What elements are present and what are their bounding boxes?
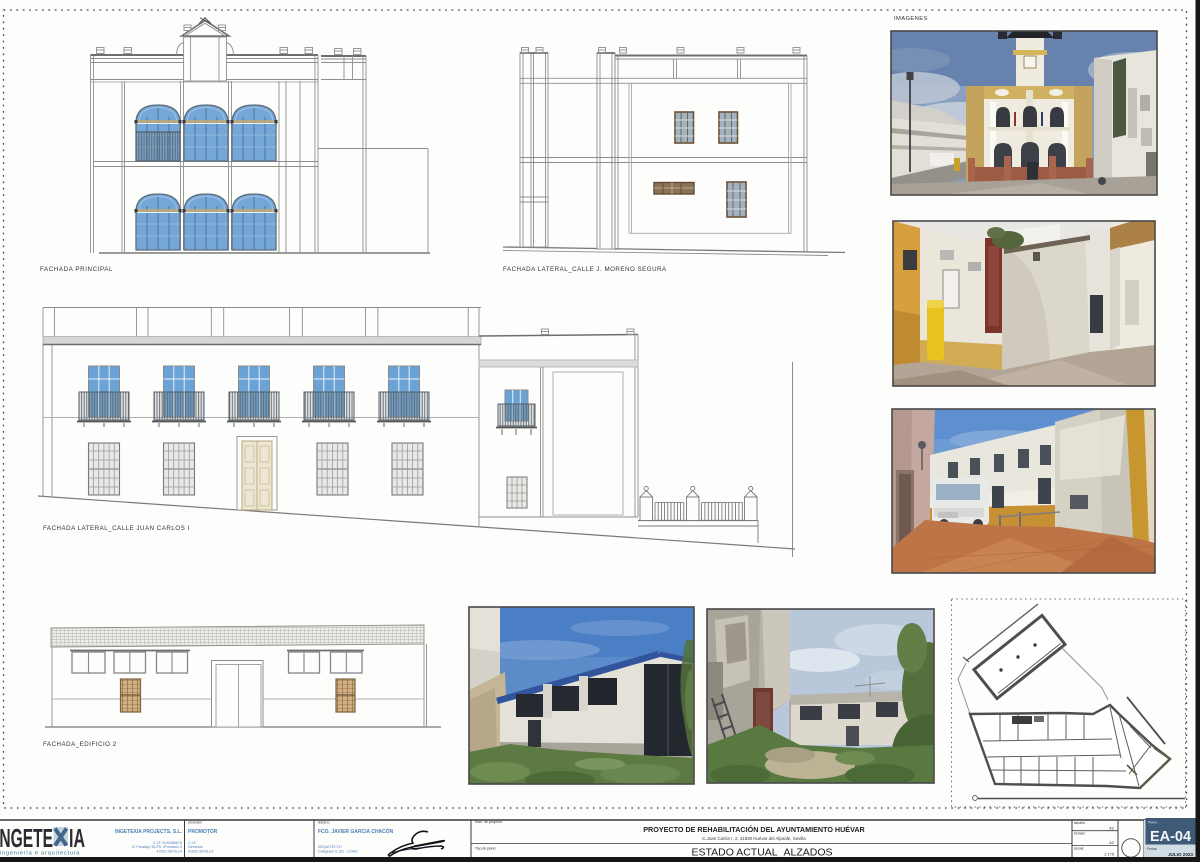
svg-text:EA-04: EA-04 bbox=[1150, 829, 1191, 845]
svg-text:C.Juan Carlos I, 2, 41830 Huév: C.Juan Carlos I, 2, 41830 Huévar del Alj… bbox=[702, 836, 806, 841]
svg-text:Colegiado 6.181 - COAS: Colegiado 6.181 - COAS bbox=[318, 849, 358, 853]
svg-text:FACHADA LATERAL_CALLE J. MOR: FACHADA LATERAL_CALLE J. MORENO SEGURA bbox=[503, 266, 667, 273]
svg-text:A2: A2 bbox=[1109, 826, 1115, 831]
svg-text:promotor:: promotor: bbox=[188, 821, 203, 825]
svg-text:PROMOTOR: PROMOTOR bbox=[188, 829, 218, 835]
svg-text:FACHADA PRINCIPAL: FACHADA PRINCIPAL bbox=[40, 266, 113, 273]
svg-text:escala:: escala: bbox=[1074, 846, 1084, 850]
svg-text:FACHADA LATERAL_CALLE JUAN: FACHADA LATERAL_CALLE JUAN CARLOS I bbox=[43, 525, 190, 532]
svg-text:ingeniería e arquitectura: ingeniería e arquitectura bbox=[0, 851, 80, 857]
svg-text:JULIO 2023: JULIO 2023 bbox=[1168, 852, 1193, 857]
svg-text:1:175: 1:175 bbox=[1104, 852, 1115, 857]
svg-text:Fecha:: Fecha: bbox=[1147, 847, 1157, 851]
svg-text:IMAGENES: IMAGENES bbox=[894, 16, 928, 22]
svg-text:PROYECTO DE REHABILITACIÓN DEL: PROYECTO DE REHABILITACIÓN DEL AYUNTAMIE… bbox=[643, 825, 865, 834]
svg-text:Nom. de proyecto:: Nom. de proyecto: bbox=[475, 820, 503, 824]
svg-text:FACHADA_EDIFICIO 2: FACHADA_EDIFICIO 2 bbox=[43, 741, 117, 748]
svg-text:A2: A2 bbox=[1109, 840, 1115, 845]
svg-text:41092 SEVILLA: 41092 SEVILLA bbox=[156, 849, 182, 853]
svg-text:formato:: formato: bbox=[1074, 832, 1086, 836]
svg-text:IA: IA bbox=[69, 823, 85, 853]
svg-text:iNGETE: iNGETE bbox=[0, 823, 53, 853]
svg-text:41830 SEVILLA: 41830 SEVILLA bbox=[188, 849, 214, 853]
svg-text:Tipo de plano:: Tipo de plano: bbox=[475, 847, 496, 851]
svg-text:FCO. JAVIER GARCIA CHACÓN: FCO. JAVIER GARCIA CHACÓN bbox=[318, 827, 394, 835]
svg-text:ESTADO ACTUAL_ALZADOS: ESTADO ACTUAL_ALZADOS bbox=[691, 847, 832, 859]
svg-text:técnico:: técnico: bbox=[318, 821, 330, 825]
svg-text:Plano:: Plano: bbox=[1148, 821, 1158, 825]
svg-text:tamaño:: tamaño: bbox=[1074, 821, 1086, 825]
svg-text:INGETEXIA PROJECTS, S.L.: INGETEXIA PROJECTS, S.L. bbox=[115, 829, 183, 835]
